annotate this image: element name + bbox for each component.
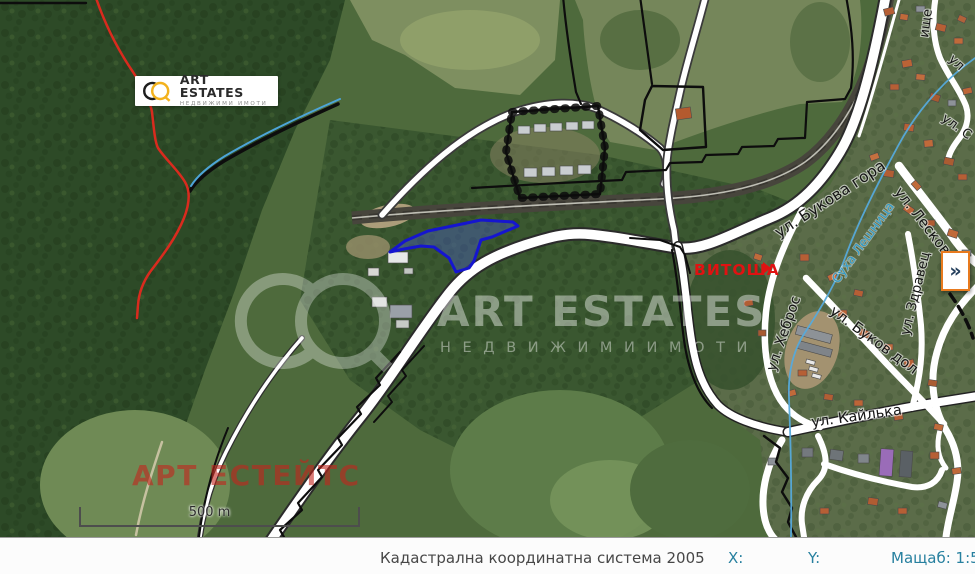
- scale-bar-label: 500 m: [81, 505, 338, 520]
- y-coordinate-label: Y:: [808, 549, 820, 567]
- panel-toggle-button[interactable]: »: [941, 251, 970, 291]
- status-bar: Кадастрална координатна система 2005 X: …: [0, 537, 975, 574]
- logo-tagline-text: НЕДВИЖИМИ ИМОТИ: [180, 102, 272, 108]
- scale-bar: 500 m: [79, 507, 360, 527]
- logo-card: ART ESTATES НЕДВИЖИМИ ИМОТИ: [135, 76, 278, 106]
- watermark-tagline: Н Е Д В И Ж И М И И М О Т И: [440, 340, 751, 356]
- map-viewport[interactable]: ул. Букова гора ул. Лесковец ул. Здравец…: [0, 0, 975, 537]
- x-coordinate-label: X:: [728, 549, 743, 567]
- watermark-brand-cyrillic: АРТ ЕСТЕЙТС: [132, 458, 361, 492]
- logo-brand-text: ART ESTATES: [180, 74, 272, 99]
- art-estates-logo-icon: [140, 78, 174, 104]
- map-scale-label: Мащаб: 1:5 000: [891, 549, 975, 567]
- watermark-brand: ART ESTATES: [437, 287, 766, 336]
- application-window: ул. Букова гора ул. Лесковец ул. Здравец…: [0, 0, 975, 574]
- chevron-right-icon: »: [949, 260, 961, 282]
- crs-label: Кадастрална координатна система 2005: [380, 549, 705, 567]
